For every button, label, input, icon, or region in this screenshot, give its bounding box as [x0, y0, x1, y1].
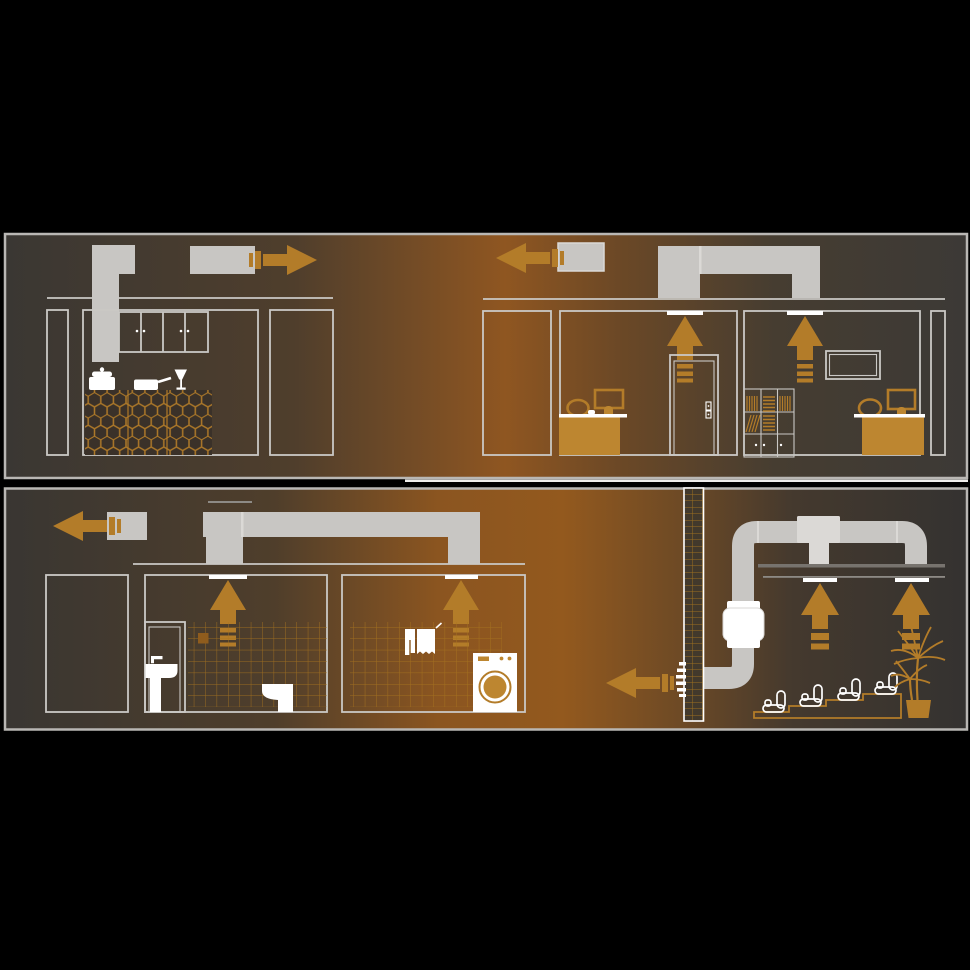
duct-seam — [699, 246, 702, 274]
ceiling-vent-icon — [787, 311, 823, 315]
hex-tile-island-icon — [85, 390, 212, 455]
washing-machine-icon — [473, 653, 517, 712]
knob-dot — [500, 657, 504, 661]
plant-pot — [906, 700, 931, 718]
floor-divider-line — [405, 480, 968, 483]
diagram-canvas — [0, 0, 970, 970]
ceiling-vent-icon — [895, 578, 929, 582]
ceiling-vent-icon — [803, 578, 837, 582]
sink-pedestal — [150, 678, 161, 712]
ceiling-thin-line — [763, 576, 945, 578]
duct-segment — [92, 272, 119, 362]
drum-door — [484, 676, 507, 699]
exhaust-duct-icon — [558, 243, 604, 271]
cabinet-handle-dot — [187, 330, 190, 333]
desk-top — [854, 414, 925, 418]
control-panel — [478, 657, 489, 662]
cabinet-handle-dot — [180, 330, 183, 333]
knob-dot — [508, 657, 512, 661]
cabinet-handle-dot — [136, 330, 139, 333]
duct-seam — [896, 521, 898, 543]
desk-icon — [862, 418, 924, 456]
sink-basin — [146, 664, 178, 678]
wall-tiles-icon — [188, 622, 327, 707]
cabinet-handle-dot — [143, 330, 146, 333]
cabinet-handle-dot — [780, 444, 782, 446]
ceiling-vent-icon — [445, 575, 478, 579]
duct-seam — [241, 512, 244, 537]
ceiling-vent-icon — [209, 575, 247, 579]
roof-line — [208, 501, 252, 503]
inline-duct-fan-icon — [723, 601, 764, 648]
bottom-panel — [5, 488, 967, 730]
exhaust-duct-icon — [190, 246, 255, 274]
desk-icon — [559, 418, 620, 456]
accent-tile — [198, 633, 209, 644]
desk-top — [559, 414, 627, 418]
duct-segment — [92, 245, 135, 274]
mouse-icon — [588, 410, 595, 415]
door-handle-dot — [708, 414, 710, 416]
island-hex-pattern — [85, 390, 212, 455]
ceiling-vent-icon — [667, 311, 703, 315]
tiled-shaft-wall-icon — [684, 488, 704, 721]
ventilation-illustration — [0, 0, 970, 970]
door-handle-dot — [708, 405, 710, 407]
duct-seam — [757, 521, 759, 543]
suspended-ceiling-icon — [758, 564, 945, 568]
top-panel — [5, 234, 967, 478]
cabinet-handle-dot — [763, 444, 765, 446]
cabinet-handle-dot — [755, 444, 757, 446]
